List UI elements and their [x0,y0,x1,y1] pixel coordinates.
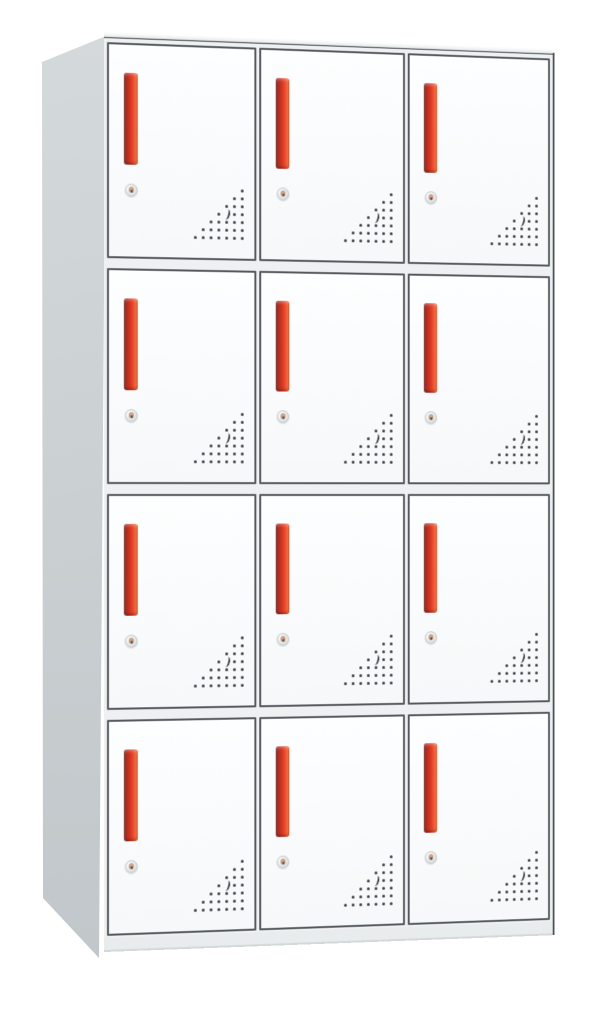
vent-hole [535,851,538,854]
vent-hole [535,641,538,644]
vent-hole [513,446,516,449]
cam-lock-icon [425,851,437,864]
vent-hole [233,684,236,687]
vent-hole [241,445,244,448]
vent-hole [505,446,508,449]
vent-hole [375,903,378,906]
locker-door-r4c3 [408,712,550,925]
vent-hole [390,674,393,677]
door-handle [124,524,138,616]
keyhole-core [129,863,134,869]
vent-hole [390,894,393,897]
vent-hole [513,672,516,675]
vent-hole [390,437,393,440]
vent-hole [390,193,393,196]
vent-hole [241,868,244,871]
cam-lock-icon [277,410,290,423]
vent-hole [359,232,362,235]
vent-hole [520,649,523,652]
vent-hole [194,460,197,463]
vent-holes-pattern [193,188,244,241]
door-handle [424,83,437,173]
vent-hole [528,874,531,877]
vent-hole [382,461,385,464]
vent-hole [344,682,347,685]
vent-hole [375,682,378,685]
vent-hole [225,652,228,655]
vent-hole [225,668,228,671]
vent-hole [233,668,236,671]
vent-crescent-cutout [222,432,231,444]
vent-hole [535,235,538,238]
vent-hole [359,895,362,898]
keyhole-core [281,636,286,642]
vent-hole [241,660,244,663]
vent-hole [382,224,385,227]
vent-hole [202,909,205,912]
vent-holes-pattern [490,415,538,465]
vent-hole [490,680,493,683]
locker-door-r4c1 [107,717,256,936]
vent-hole [505,461,508,464]
vent-hole [382,887,385,890]
vent-hole [233,437,236,440]
vent-hole [513,227,516,230]
vent-hole [367,453,370,456]
vent-hole [375,461,378,464]
vent-crescent-cutout [222,208,231,220]
locker-door-r2c1 [107,268,256,484]
vent-hole [535,671,538,674]
vent-hole [528,648,531,651]
vent-hole [217,236,220,239]
vent-hole [382,201,385,204]
vent-hole [241,437,244,440]
vent-hole [367,879,370,882]
vent-hole [528,656,531,659]
vent-crescent-cutout [222,879,231,891]
cam-lock-icon [125,184,138,197]
vent-hole [382,216,385,219]
vent-crescent-cutout [371,212,380,224]
vent-hole [390,445,393,448]
vent-hole [390,902,393,905]
vent-crescent-cutout [517,652,526,664]
vent-hole [390,642,393,645]
vent-hole [382,666,385,669]
vent-hole [520,890,523,893]
vent-hole [241,452,244,455]
vent-hole [390,658,393,661]
vent-hole [210,228,213,231]
cabinet-side-panel [42,36,106,958]
vent-hole [535,212,538,215]
vent-hole [528,423,531,426]
vent-hole [382,682,385,685]
vent-hole [367,666,370,669]
vent-hole [233,205,236,208]
door-handle [276,301,290,392]
vent-holes-pattern [343,414,393,465]
vent-hole [241,221,244,224]
vent-hole [520,446,523,449]
vent-hole [390,461,393,464]
vent-hole [535,423,538,426]
vent-hole [210,892,213,895]
cam-lock-icon [425,631,437,644]
vent-hole [375,445,378,448]
vent-hole [390,240,393,243]
door-row-2 [107,268,550,484]
vent-hole [498,898,501,901]
vent-hole [382,863,385,866]
vent-hole [241,213,244,216]
vent-hole [233,884,236,887]
door-row-3 [107,494,550,710]
vent-hole [225,205,228,208]
vent-holes-pattern [490,851,538,903]
vent-hole [390,201,393,204]
vent-hole [352,461,355,464]
cam-lock-icon [277,187,290,200]
vent-hole [367,887,370,890]
keyhole-core [129,412,134,418]
vent-hole [535,859,538,862]
vent-hole [535,461,538,464]
vent-hole [375,871,378,874]
vent-hole [375,650,378,653]
vent-crescent-cutout [371,433,380,445]
vent-hole [225,676,228,679]
vent-hole [535,648,538,651]
vent-hole [535,633,538,636]
vent-hole [535,453,538,456]
keyhole-core [429,194,434,200]
vent-hole [535,438,538,441]
vent-hole [520,235,523,238]
vent-hole [367,903,370,906]
vent-crescent-cutout [517,433,526,445]
locker-door-r3c2 [259,494,405,707]
vent-hole [528,243,531,246]
locker-door-r1c3 [408,53,550,266]
door-grid [107,42,550,936]
vent-hole [233,229,236,232]
locker-door-r1c1 [107,42,256,261]
vent-hole [513,875,516,878]
vent-hole [505,453,508,456]
vent-hole [382,650,385,653]
door-handle [424,523,437,613]
vent-crescent-cutout [371,875,380,887]
vent-hole [194,685,197,688]
vent-hole [352,239,355,242]
cam-lock-icon [125,860,138,873]
vent-hole [513,890,516,893]
door-handle [424,303,437,393]
vent-hole [535,220,538,223]
vent-hole [535,446,538,449]
vent-hole [241,907,244,910]
vent-hole [359,666,362,669]
vent-hole [217,660,220,663]
vent-hole [241,413,244,416]
vent-hole [505,890,508,893]
vent-hole [352,674,355,677]
vent-hole [359,461,362,464]
vent-crescent-cutout [517,870,526,882]
vent-hole [241,884,244,887]
vent-hole [528,430,531,433]
vent-hole [241,676,244,679]
vent-hole [528,672,531,675]
vent-hole [233,221,236,224]
vent-hole [367,461,370,464]
door-row-1 [107,42,550,266]
vent-hole [535,882,538,885]
cam-lock-icon [425,411,437,424]
vent-hole [202,684,205,687]
vent-hole [382,674,385,677]
locker-door-r4c2 [259,714,405,930]
vent-hole [202,460,205,463]
vent-hole [528,212,531,215]
vent-hole [217,460,220,463]
keyhole-core [129,638,134,644]
vent-hole [375,240,378,243]
vent-hole [382,453,385,456]
cam-lock-icon [425,191,437,204]
vent-hole [359,445,362,448]
vent-hole [241,652,244,655]
vent-hole [210,908,213,911]
vent-holes-pattern [193,636,244,688]
vent-hole [225,460,228,463]
vent-hole [225,221,228,224]
vent-hole [344,904,347,907]
vent-hole [520,898,523,901]
vent-hole [390,453,393,456]
vent-hole [390,863,393,866]
vent-hole [535,228,538,231]
vent-hole [352,896,355,899]
vent-hole [528,228,531,231]
vent-hole [359,682,362,685]
door-handle [124,73,138,165]
vent-hole [382,445,385,448]
vent-hole [194,909,197,912]
vent-hole [367,674,370,677]
vent-holes-pattern [490,633,538,684]
vent-hole [210,684,213,687]
vent-hole [352,453,355,456]
cam-lock-icon [125,635,138,648]
vent-hole [390,224,393,227]
vent-hole [528,204,531,207]
vent-hole [390,871,393,874]
vent-hole [505,672,508,675]
vent-hole [217,908,220,911]
vent-hole [367,224,370,227]
vent-hole [375,674,378,677]
vent-hole [528,453,531,456]
vent-hole [233,676,236,679]
vent-hole [513,243,516,246]
vent-hole [375,429,378,432]
vent-hole [535,197,538,200]
vent-hole [241,197,244,200]
vent-hole [382,430,385,433]
vent-hole [217,676,220,679]
vent-hole [528,897,531,900]
vent-hole [233,892,236,895]
door-handle [276,746,290,837]
vent-hole [505,227,508,230]
vent-hole [390,430,393,433]
vent-hole [390,650,393,653]
vent-hole [217,892,220,895]
vent-hole [390,681,393,684]
vent-hole [233,876,236,879]
vent-hole [505,243,508,246]
vent-hole [535,679,538,682]
vent-hole [233,460,236,463]
vent-hole [520,453,523,456]
vent-hole [359,888,362,891]
vent-hole [513,656,516,659]
vent-holes-pattern [193,413,244,465]
vent-hole [225,684,228,687]
vent-hole [210,236,213,239]
vent-hole [210,676,213,679]
vent-hole [241,636,244,639]
vent-hole [490,461,493,464]
vent-hole [505,235,508,238]
vent-hole [520,882,523,885]
vent-hole [528,664,531,667]
vent-hole [210,460,213,463]
vent-hole [528,438,531,441]
vent-hole [382,240,385,243]
vent-hole [233,213,236,216]
vent-hole [202,452,205,455]
vent-hole [520,243,523,246]
vent-hole [520,672,523,675]
vent-hole [233,644,236,647]
keyhole-core [129,187,134,193]
vent-hole [367,658,370,661]
vent-holes-pattern [193,860,244,913]
vent-hole [367,682,370,685]
vent-hole [225,444,228,447]
vent-hole [535,656,538,659]
vent-hole [535,889,538,892]
vent-hole [490,242,493,245]
vent-hole [375,666,378,669]
keyhole-core [429,634,434,640]
vent-hole [513,664,516,667]
vent-hole [233,452,236,455]
vent-hole [513,898,516,901]
vent-hole [210,452,213,455]
vent-hole [528,235,531,238]
vent-hole [241,891,244,894]
product-photo [0,0,605,1009]
vent-hole [217,228,220,231]
vent-hole [352,682,355,685]
vent-hole [520,679,523,682]
vent-hole [382,902,385,905]
vent-hole [535,430,538,433]
vent-hole [505,664,508,667]
vent-hole [233,421,236,424]
vent-hole [535,874,538,877]
door-handle [124,749,138,841]
vent-hole [382,422,385,425]
cam-lock-icon [277,855,290,868]
cabinet-front [104,36,555,952]
vent-hole [390,414,393,417]
vent-hole [241,668,244,671]
vent-hole [241,876,244,879]
vent-hole [390,217,393,220]
vent-holes-pattern [490,196,538,247]
vent-hole [233,907,236,910]
door-handle [276,524,290,615]
vent-hole [528,882,531,885]
vent-hole [367,445,370,448]
vent-holes-pattern [343,192,393,244]
vent-crescent-cutout [517,215,526,227]
vent-hole [390,209,393,212]
vent-hole [233,652,236,655]
locker-door-r3c1 [107,494,256,710]
vent-hole [513,453,516,456]
cam-lock-icon [125,409,138,422]
vent-hole [241,860,244,863]
vent-hole [535,243,538,246]
vent-hole [210,668,213,671]
locker-door-r2c2 [259,271,405,484]
vent-hole [528,461,531,464]
door-handle [276,78,290,169]
vent-hole [359,453,362,456]
vent-hole [233,868,236,871]
vent-hole [498,235,501,238]
vent-hole [382,879,385,882]
vent-hole [382,643,385,646]
vent-hole [202,901,205,904]
vent-hole [233,237,236,240]
vent-hole [390,887,393,890]
vent-hole [390,879,393,882]
vent-hole [233,429,236,432]
vent-hole [513,882,516,885]
vent-hole [505,680,508,683]
vent-hole [535,866,538,869]
vent-hole [498,891,501,894]
vent-hole [241,899,244,902]
vent-hole [520,227,523,230]
vent-hole [352,903,355,906]
vent-hole [375,232,378,235]
vent-hole [217,221,220,224]
vent-hole [217,444,220,447]
vent-hole [217,437,220,440]
vent-hole [513,219,516,222]
keyhole-core [281,413,286,419]
vent-hole [359,903,362,906]
